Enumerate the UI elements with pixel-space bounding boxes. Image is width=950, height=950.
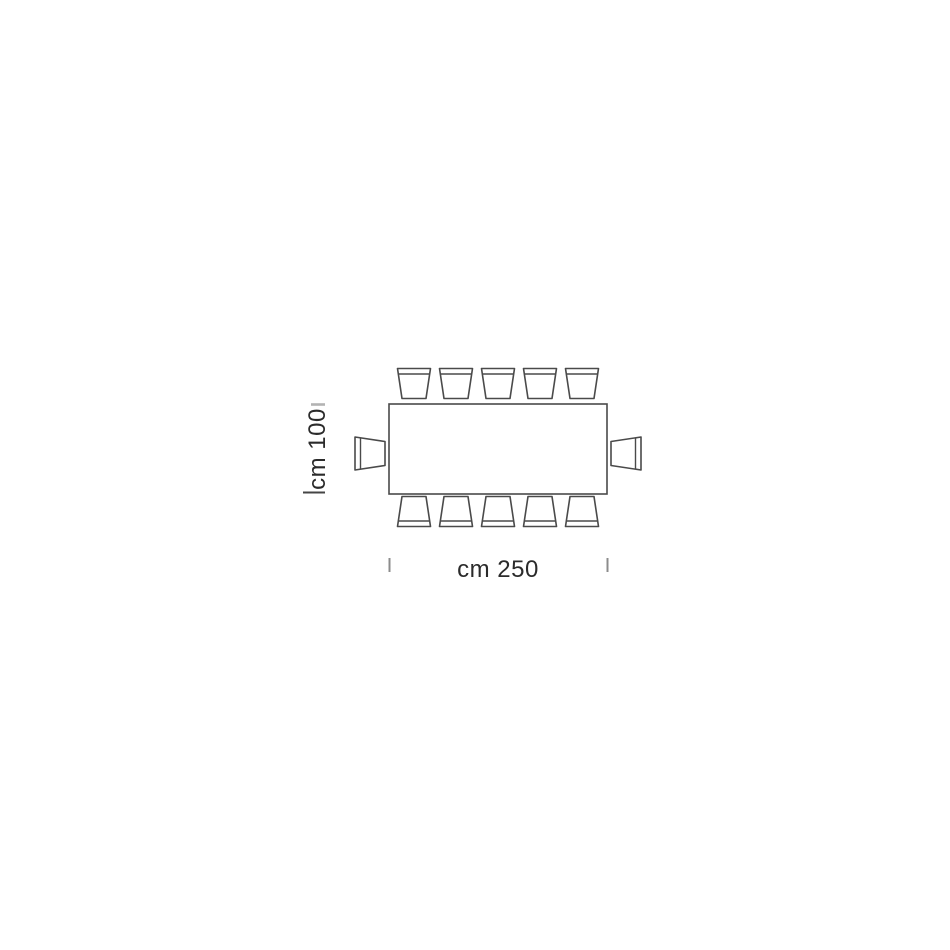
chair-bottom-2-seat: [440, 497, 473, 527]
page-background: cm 100 cm 250: [0, 0, 950, 950]
chair-left-end: [355, 437, 385, 470]
chair-top-5-seat: [566, 369, 599, 399]
chair-top-5: [566, 369, 599, 399]
chair-top-1-seat: [398, 369, 431, 399]
chair-top-3: [482, 369, 515, 399]
table-depth-dimension-label: cm 100: [304, 408, 332, 490]
chair-bottom-5-seat: [566, 497, 599, 527]
chair-left-end-seat: [355, 437, 385, 470]
chair-top-4: [524, 369, 557, 399]
chair-right-end-seat: [611, 437, 641, 470]
chair-right-end: [611, 437, 641, 470]
chair-bottom-1-seat: [398, 497, 431, 527]
chair-bottom-3: [482, 497, 515, 527]
chair-top-2: [440, 369, 473, 399]
chair-bottom-4: [524, 497, 557, 527]
chair-bottom-4-seat: [524, 497, 557, 527]
chair-top-2-seat: [440, 369, 473, 399]
chair-top-3-seat: [482, 369, 515, 399]
chair-bottom-3-seat: [482, 497, 515, 527]
table-width-dimension-label: cm 250: [389, 556, 607, 584]
chair-bottom-1: [398, 497, 431, 527]
table-top: [389, 404, 607, 494]
chair-top-4-seat: [524, 369, 557, 399]
table-plan-drawing: [0, 0, 950, 950]
chair-top-1: [398, 369, 431, 399]
chair-bottom-5: [566, 497, 599, 527]
chair-bottom-2: [440, 497, 473, 527]
